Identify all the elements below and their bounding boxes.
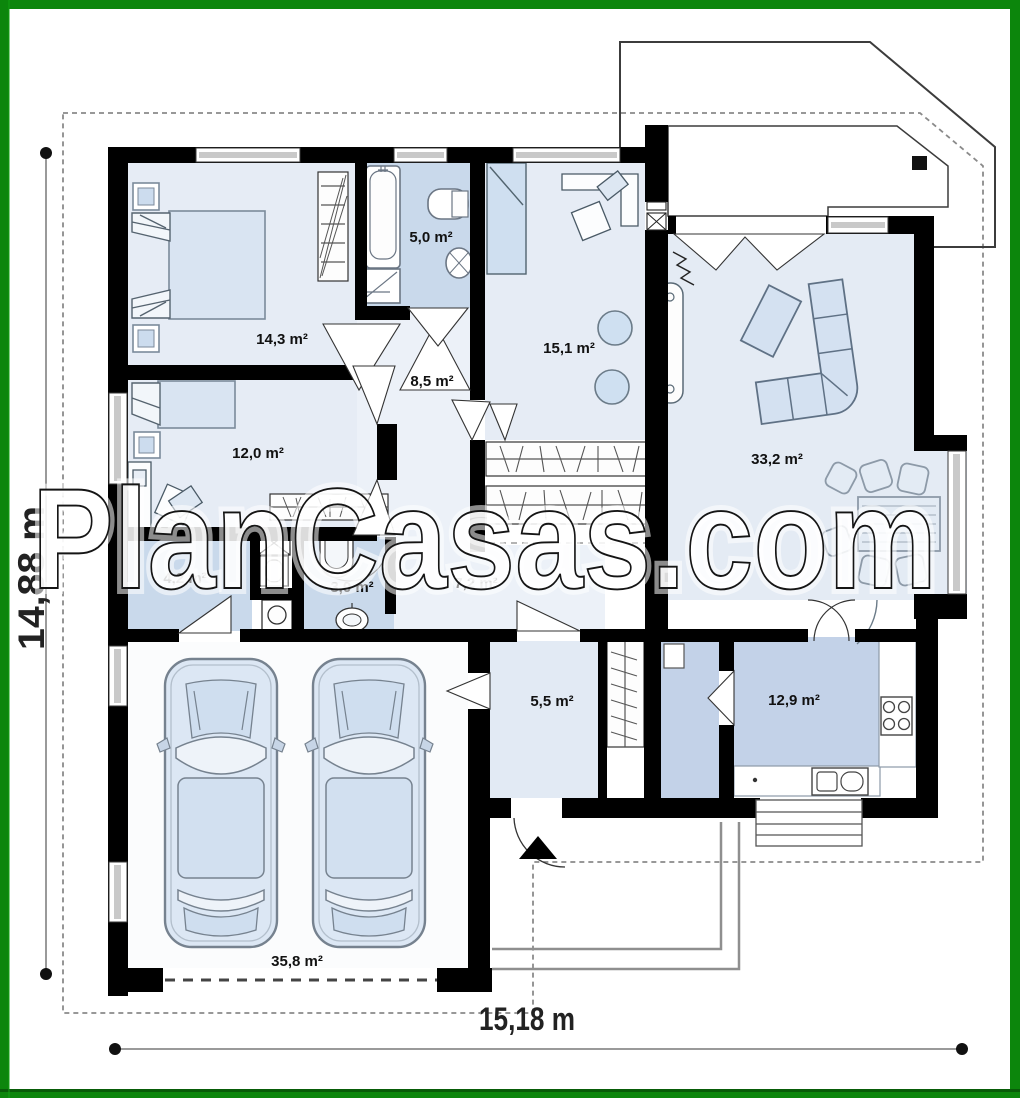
svg-text:PlanCasas.com: PlanCasas.com: [32, 460, 937, 619]
svg-text:35,8 m²: 35,8 m²: [271, 953, 323, 970]
svg-text:12,9 m²: 12,9 m²: [768, 692, 820, 709]
svg-text:15,18 m: 15,18 m: [479, 1001, 575, 1037]
svg-text:14,3 m²: 14,3 m²: [256, 331, 308, 348]
svg-text:15,1 m²: 15,1 m²: [543, 340, 595, 357]
svg-text:8,5 m²: 8,5 m²: [410, 373, 453, 390]
svg-text:5,5 m²: 5,5 m²: [530, 693, 573, 710]
svg-text:5,0 m²: 5,0 m²: [409, 229, 452, 246]
